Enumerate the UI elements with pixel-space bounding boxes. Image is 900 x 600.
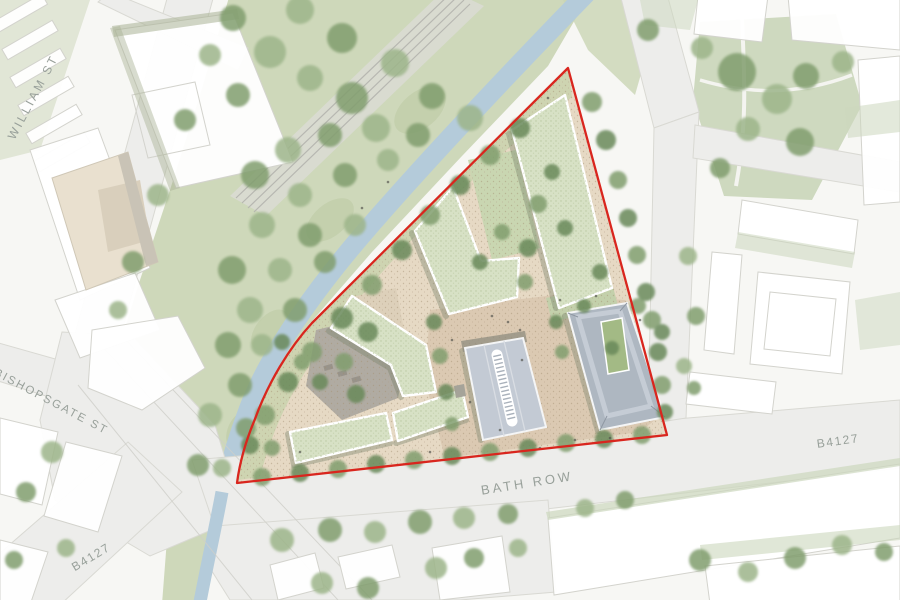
site-plan-graphics: [0, 0, 900, 600]
site-plan-canvas: WILLIAM ST BISHOPSGATE ST BATH ROW B4127…: [0, 0, 900, 600]
